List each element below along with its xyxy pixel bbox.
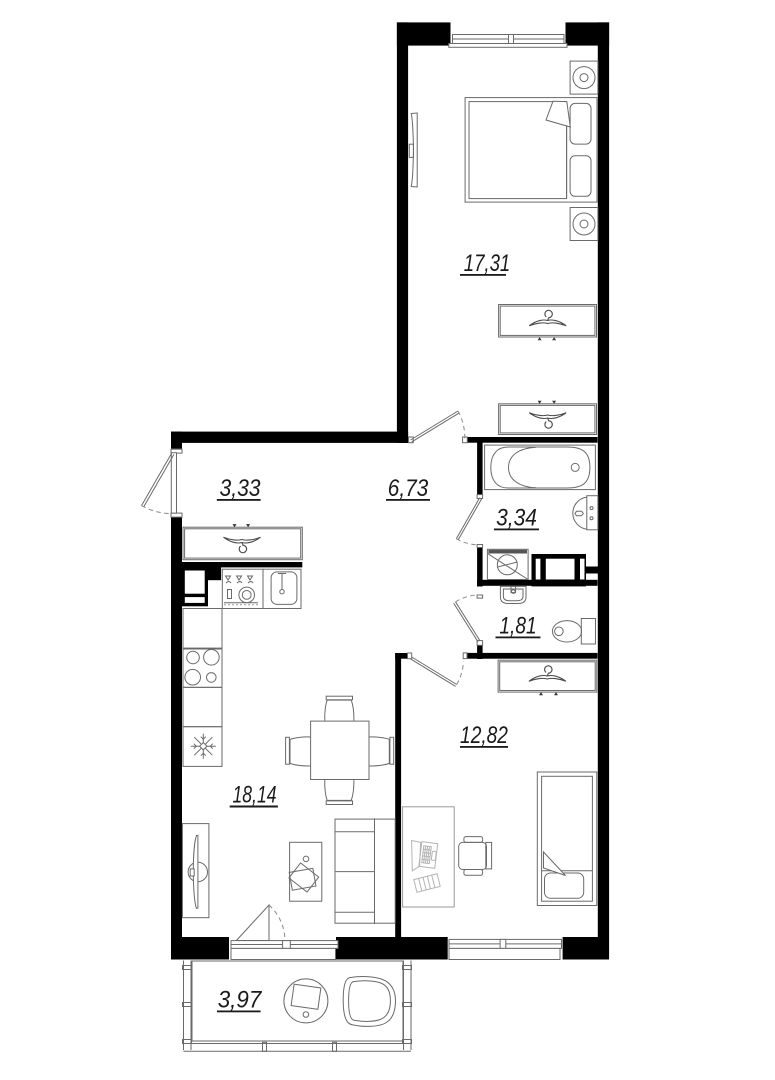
svg-text:18,14: 18,14 [233,782,277,809]
svg-text:3,34: 3,34 [496,505,537,532]
svg-text:12,82: 12,82 [460,722,508,749]
svg-text:17,31: 17,31 [464,250,511,277]
svg-text:6,73: 6,73 [388,475,429,502]
svg-text:3,33: 3,33 [220,475,262,502]
svg-text:1,81: 1,81 [499,613,536,640]
svg-text:3,97: 3,97 [218,987,263,1014]
